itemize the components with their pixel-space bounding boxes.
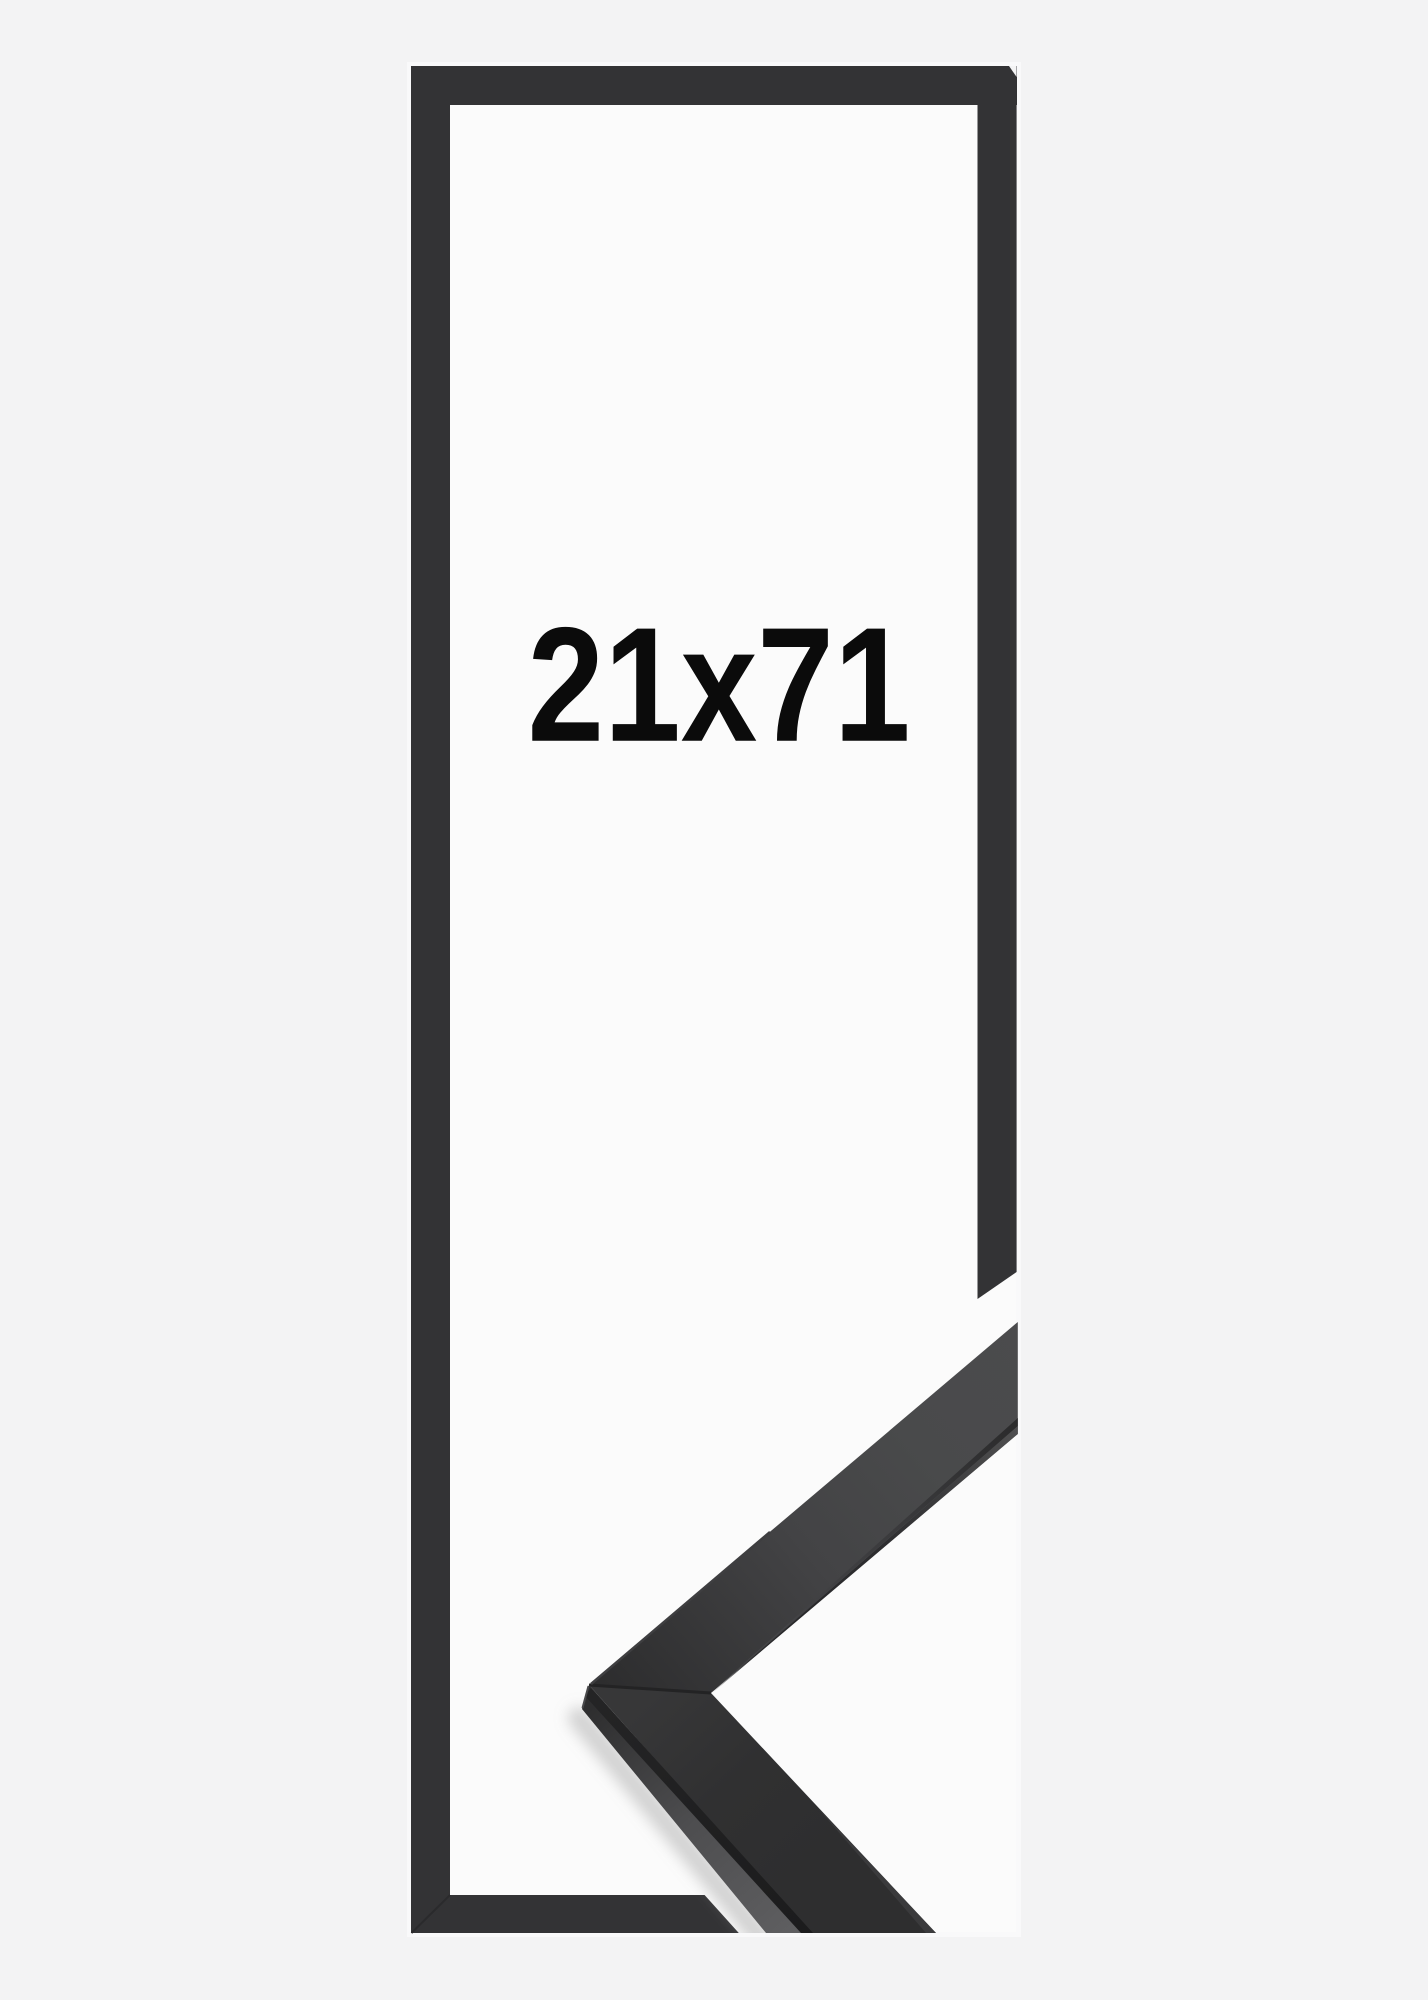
svg-text:21x71: 21x71 [528,593,911,776]
